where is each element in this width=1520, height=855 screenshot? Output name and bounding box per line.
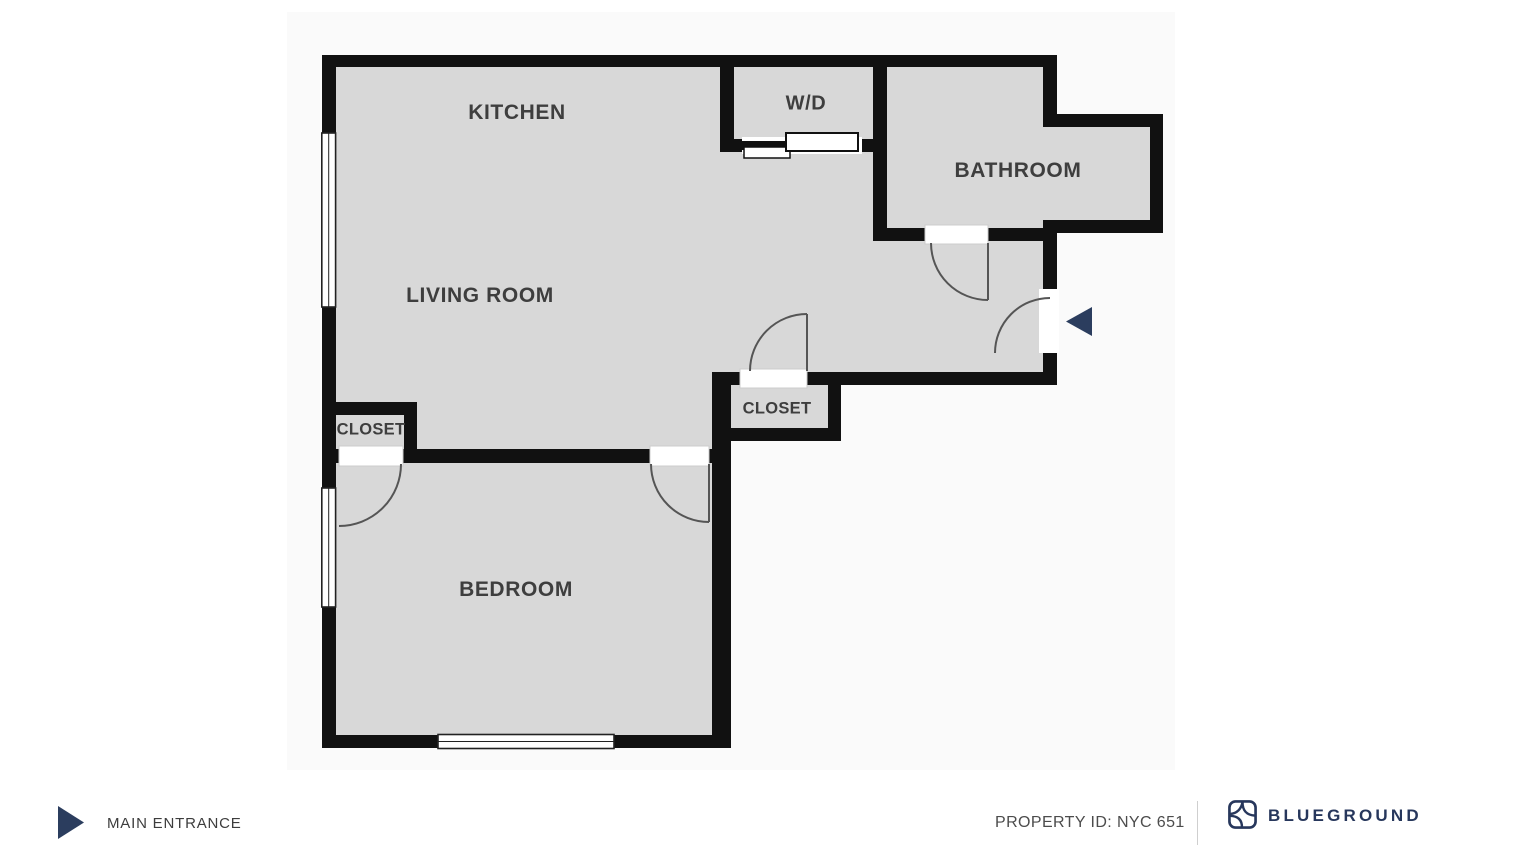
window-bedroom-left: [322, 488, 336, 607]
room-label-living-room: LIVING ROOM: [406, 284, 554, 308]
floor-plan-page: KITCHEN W/D BATHROOM LIVING ROOM CLOSET …: [0, 0, 1520, 855]
opening-closet-hall: [740, 369, 807, 388]
room-label-closet-living: CLOSET: [337, 421, 406, 440]
footer-divider: [1197, 801, 1198, 845]
window-bedroom-bottom: [438, 735, 614, 749]
room-label-washer-dryer: W/D: [786, 93, 827, 116]
blueground-logo-icon: [1227, 799, 1258, 830]
wall-closet-living-top: [322, 402, 417, 415]
entrance-arrow-icon: [1066, 307, 1092, 336]
wall-wd-left: [720, 55, 734, 151]
floor-plan-drawing: [0, 0, 1520, 855]
wall-closet-living-right: [404, 402, 417, 463]
wall-bathroom-notch-top: [1043, 114, 1163, 127]
window-living-left: [322, 133, 336, 307]
room-label-kitchen: KITCHEN: [468, 101, 566, 125]
room-label-bathroom: BATHROOM: [955, 159, 1082, 183]
wall-bathroom-left: [873, 55, 887, 241]
wall-far-right: [1150, 114, 1163, 233]
room-label-bedroom: BEDROOM: [459, 578, 573, 602]
wall-closet-hall-bottom: [712, 428, 841, 441]
wall-bathroom-ext-bottom: [1043, 220, 1163, 233]
legend-entrance-arrow-icon: [58, 806, 84, 839]
wall-top: [322, 55, 1057, 67]
opening-bathroom: [925, 225, 988, 244]
opening-bedroom: [650, 446, 709, 466]
room-label-closet-hall: CLOSET: [743, 400, 812, 419]
property-id-label: PROPERTY ID: NYC 651: [995, 814, 1185, 832]
brand-name-label: BLUEGROUND: [1268, 806, 1422, 826]
opening-closet-living: [339, 446, 403, 466]
main-entrance-legend-label: MAIN ENTRANCE: [107, 815, 242, 832]
